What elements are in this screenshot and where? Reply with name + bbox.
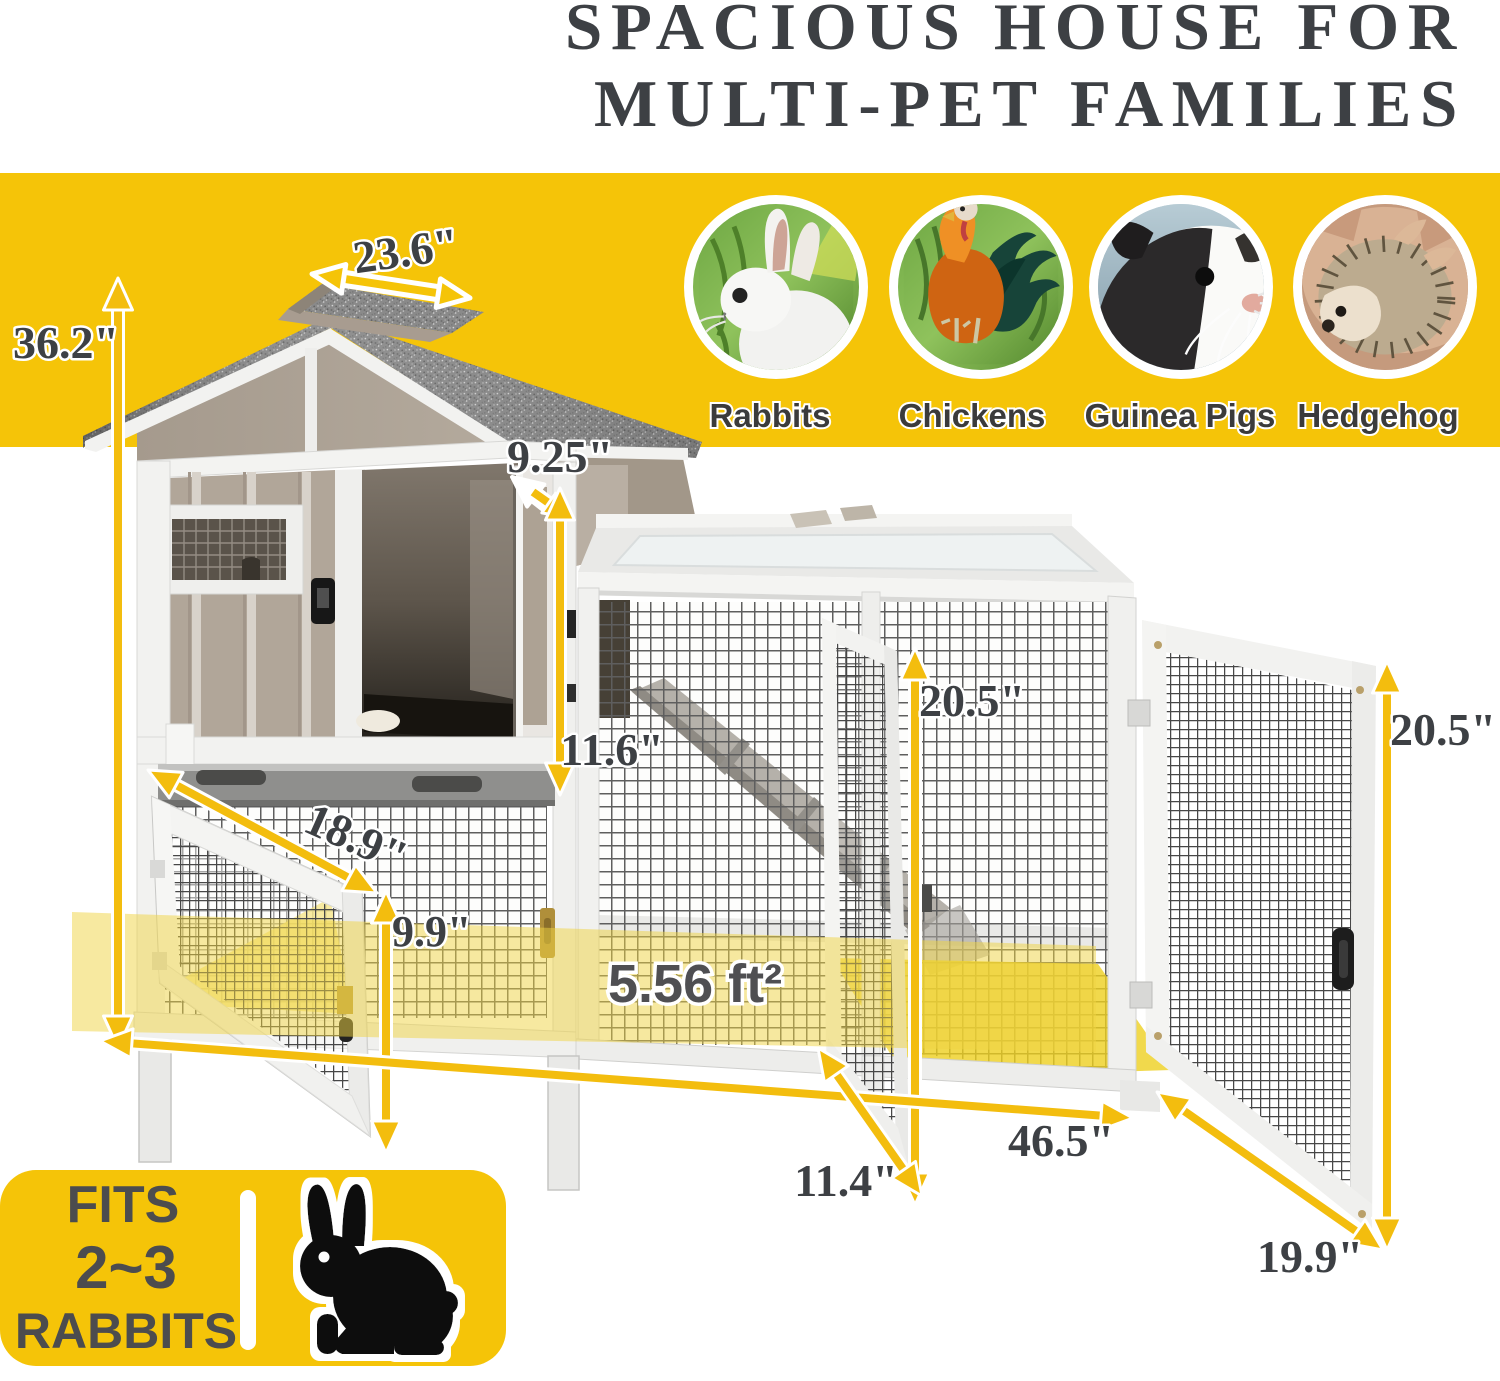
svg-text:46.5": 46.5" [1008, 1115, 1114, 1166]
svg-text:RABBITS: RABBITS [15, 1303, 237, 1359]
svg-text:9.25": 9.25" [507, 431, 613, 482]
svg-text:9.9": 9.9" [392, 907, 471, 956]
svg-text:20.5": 20.5" [919, 675, 1025, 726]
svg-text:11.6": 11.6" [560, 724, 664, 775]
svg-text:19.9": 19.9" [1257, 1231, 1363, 1282]
svg-text:SPACIOUS HOUSE FOR: SPACIOUS HOUSE FOR [565, 0, 1465, 64]
svg-text:Guinea Pigs: Guinea Pigs [1085, 397, 1276, 434]
svg-text:5.56 ft²: 5.56 ft² [608, 954, 782, 1014]
svg-text:2~3: 2~3 [75, 1234, 177, 1301]
svg-text:FITS: FITS [67, 1176, 180, 1234]
svg-text:36.2": 36.2" [13, 317, 119, 368]
svg-text:11.4": 11.4" [794, 1155, 898, 1206]
svg-text:Hedgehog: Hedgehog [1297, 397, 1458, 434]
svg-text:Rabbits: Rabbits [709, 397, 830, 434]
svg-text:20.5": 20.5" [1390, 704, 1496, 755]
svg-text:MULTI-PET FAMILIES: MULTI-PET FAMILIES [594, 67, 1466, 141]
svg-text:Chickens: Chickens [899, 397, 1046, 434]
